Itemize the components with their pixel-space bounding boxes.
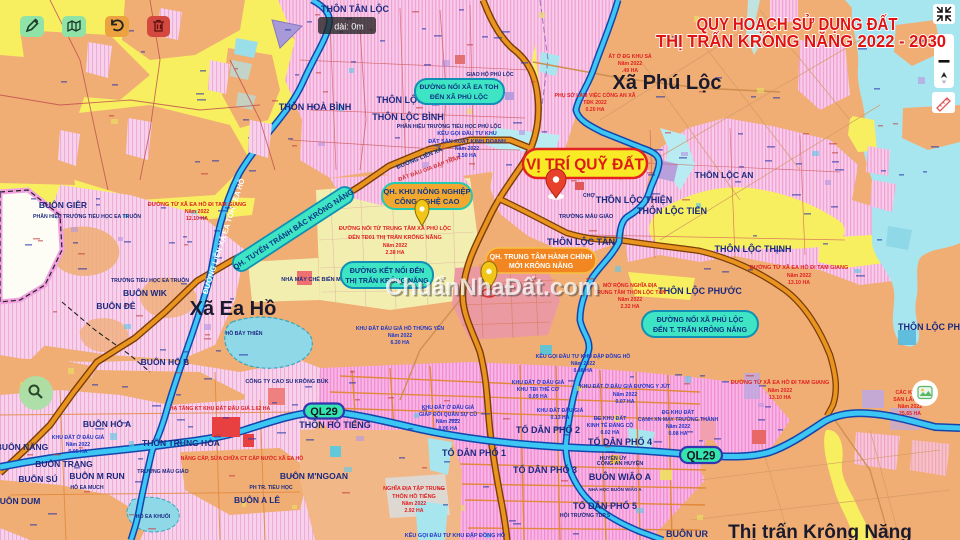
svg-text:BUÔN ĐÊ: BUÔN ĐÊ xyxy=(96,300,136,311)
svg-text:QH. TRUNG TÂM HÀNH CHÍNH: QH. TRUNG TÂM HÀNH CHÍNH xyxy=(490,252,593,261)
svg-text:Năm 2022: Năm 2022 xyxy=(618,297,642,303)
svg-text:TỔ DÂN PHỐ 1: TỔ DÂN PHỐ 1 xyxy=(442,447,506,458)
svg-text:Năm 2022: Năm 2022 xyxy=(571,361,595,367)
svg-text:PHÂN HIỆU TRƯỜNG TIỂU HỌC EA T: PHÂN HIỆU TRƯỜNG TIỂU HỌC EA TRUÔN xyxy=(33,212,141,220)
svg-text:HẠ TẦNG KT KHU ĐẤT ĐẤU GIÁ 1.6: HẠ TẦNG KT KHU ĐẤT ĐẤU GIÁ 1.62 HA xyxy=(170,405,271,412)
svg-text:MỞ RỘNG NGHĨA ĐỊA: MỞ RỘNG NGHĨA ĐỊA xyxy=(603,281,657,289)
svg-text:HỒ EA KHUỐI: HỒ EA KHUỐI xyxy=(136,513,171,520)
svg-text:Năm 2022: Năm 2022 xyxy=(455,146,479,152)
svg-text:ĐƯỜNG TỪ XÃ EA HỒ ĐI TAM GIANG: ĐƯỜNG TỪ XÃ EA HỒ ĐI TAM GIANG xyxy=(750,263,848,271)
svg-text:THÔN TÂN LỘC: THÔN TÂN LỘC xyxy=(321,3,389,14)
svg-text:THÔN HỒ TIẾNG: THÔN HỒ TIẾNG xyxy=(392,492,436,500)
svg-text:Xã Ea Hồ: Xã Ea Hồ xyxy=(190,298,277,320)
svg-text:CHỢ: CHỢ xyxy=(583,193,595,199)
svg-text:QH. KHU NÔNG NGHIỆP: QH. KHU NÔNG NGHIỆP xyxy=(383,187,470,196)
svg-text:dài: 0m: dài: 0m xyxy=(334,22,364,32)
svg-text:THÔN LỘC TÂN: THÔN LỘC TÂN xyxy=(547,236,615,247)
svg-text:PHÂN HIỆU TRƯỜNG TIỂU HỌC PHÚ: PHÂN HIỆU TRƯỜNG TIỂU HỌC PHÚ LỘC xyxy=(397,122,502,130)
svg-text:Năm 2022: Năm 2022 xyxy=(618,61,642,67)
svg-text:BUÔN DUM: BUÔN DUM xyxy=(0,495,40,506)
svg-text:THÔN LỘC BÌNH: THÔN LỘC BÌNH xyxy=(372,111,444,122)
svg-text:2.32 HA: 2.32 HA xyxy=(620,304,639,310)
svg-text:BUÔN HỐ B: BUÔN HỐ B xyxy=(141,356,190,367)
svg-text:TRUNG TÂM THÔN LỘC TÂN: TRUNG TÂM THÔN LỘC TÂN xyxy=(594,288,666,296)
svg-text:Năm 2022: Năm 2022 xyxy=(66,442,90,448)
svg-text:TỔ DÂN PHỐ 2: TỔ DÂN PHỐ 2 xyxy=(516,424,580,435)
svg-text:THÔN HỒ TIẾNG: THÔN HỒ TIẾNG xyxy=(299,419,371,430)
svg-text:QL29: QL29 xyxy=(687,451,716,463)
svg-text:QL29: QL29 xyxy=(310,406,338,418)
svg-text:NGHĨA ĐỊA TẬP TRUNG: NGHĨA ĐỊA TẬP TRUNG xyxy=(383,485,445,492)
svg-text:KHU ĐẤT ĐẤU GIÁ HỒ THỪNG YÊN: KHU ĐẤT ĐẤU GIÁ HỒ THỪNG YÊN xyxy=(356,324,445,332)
svg-text:6.30 HA: 6.30 HA xyxy=(390,340,409,346)
svg-text:Năm 2022: Năm 2022 xyxy=(185,209,209,215)
svg-text:THÔN HOÀ BÌNH: THÔN HOÀ BÌNH xyxy=(279,101,352,112)
svg-text:HỒ BẢY THIÊN: HỒ BẢY THIÊN xyxy=(225,329,262,337)
svg-text:ĐẾN TĐ01 THỊ TRẤN KRÔNG NĂNG: ĐẾN TĐ01 THỊ TRẤN KRÔNG NĂNG xyxy=(348,233,442,241)
svg-text:.49 HA: .49 HA xyxy=(622,68,638,74)
svg-text:KÊU GỌI ĐẦU TƯ KHU ĐẬP ĐỒNG HỒ: KÊU GỌI ĐẦU TƯ KHU ĐẬP ĐỒNG HỒ xyxy=(405,531,506,539)
svg-text:KHU ĐẤT ĐẤU GIÁ: KHU ĐẤT ĐẤU GIÁ xyxy=(537,407,584,414)
svg-text:TRƯỜNG MẪU GIÁO: TRƯỜNG MẪU GIÁO xyxy=(559,212,614,220)
svg-text:KHU ĐẤT Ở ĐẤU GIÁ: KHU ĐẤT Ở ĐẤU GIÁ xyxy=(422,404,475,411)
svg-text:MỚI KRÔNG NĂNG: MỚI KRÔNG NĂNG xyxy=(509,261,574,270)
svg-text:TỔ DÂN PHỐ 4: TỔ DÂN PHỐ 4 xyxy=(588,436,652,447)
svg-text:Năm 2022: Năm 2022 xyxy=(402,501,426,507)
svg-text:0.02 HA: 0.02 HA xyxy=(600,430,619,436)
svg-text:Năm 2022: Năm 2022 xyxy=(666,424,690,430)
svg-text:Xã Phú Lộc: Xã Phú Lộc xyxy=(613,72,722,94)
svg-text:THÔN LỘC THỊNH: THÔN LỘC THỊNH xyxy=(715,243,792,254)
svg-text:Năm 2022: Năm 2022 xyxy=(898,404,922,410)
svg-text:0.48 HA: 0.48 HA xyxy=(573,368,592,374)
svg-text:Năm 2022: Năm 2022 xyxy=(768,388,792,394)
svg-text:ĐG KHU ĐẤT: ĐG KHU ĐẤT xyxy=(662,409,695,416)
svg-text:THÔN LỘC PH: THÔN LỘC PH xyxy=(898,321,960,332)
svg-text:KINH TẾ ĐẢNG CỘ: KINH TẾ ĐẢNG CỘ xyxy=(587,421,634,429)
svg-text:25.65 HA: 25.65 HA xyxy=(899,411,921,417)
svg-text:ĐẤT SẢN XUẤT KINH DOANH: ĐẤT SẢN XUẤT KINH DOANH xyxy=(428,138,506,145)
svg-text:0.09 HA: 0.09 HA xyxy=(528,394,547,400)
svg-text:BUÔN SÚ: BUÔN SÚ xyxy=(18,473,57,484)
svg-text:CẠNH XN MAY TRƯỜNG THÀNH: CẠNH XN MAY TRƯỜNG THÀNH xyxy=(638,415,719,423)
svg-text:VỊ TRÍ QUỸ ĐẤT: VỊ TRÍ QUỸ ĐẤT xyxy=(526,156,645,174)
svg-text:0.06 HA: 0.06 HA xyxy=(438,426,457,432)
svg-text:HỒ EA MUCH: HỒ EA MUCH xyxy=(70,484,103,491)
svg-text:TĐK 2022: TĐK 2022 xyxy=(583,100,607,106)
svg-text:2.92 HA: 2.92 HA xyxy=(404,508,423,514)
svg-text:HUYỆN ỦY: HUYỆN ỦY xyxy=(600,454,627,462)
svg-text:BUÔN WIK: BUÔN WIK xyxy=(123,287,168,298)
svg-text:GIÁP ĐỒI QUÂN SỰ CŨ: GIÁP ĐỒI QUÂN SỰ CŨ xyxy=(419,411,477,418)
svg-text:THỊ TRẤN KRÔNG NĂNG 2022 - 203: THỊ TRẤN KRÔNG NĂNG 2022 - 2030 xyxy=(656,30,946,51)
svg-text:THÔN TRUNG HÒA: THÔN TRUNG HÒA xyxy=(142,437,220,448)
svg-text:KHU ĐẤT Ở ĐẤU GIÁ: KHU ĐẤT Ở ĐẤU GIÁ xyxy=(52,434,105,441)
svg-text:Năm 2022: Năm 2022 xyxy=(436,419,460,425)
svg-text:NHÀ MÁY CHẾ BIẾN M: NHÀ MÁY CHẾ BIẾN M xyxy=(281,276,341,283)
svg-text:BUÔN A LÊ: BUÔN A LÊ xyxy=(234,494,280,505)
svg-text:KHU ĐẤT Ở ĐẤU GIÁ: KHU ĐẤT Ở ĐẤU GIÁ xyxy=(512,379,565,386)
svg-text:TỔ DÂN PHỐ 5: TỔ DÂN PHỐ 5 xyxy=(573,500,637,511)
svg-text:Thị trấn Krông Năng: Thị trấn Krông Năng xyxy=(728,522,912,540)
svg-text:2.38 HA: 2.38 HA xyxy=(385,250,404,256)
svg-text:CÔNG TY CAO SU KRÔNG BÚK: CÔNG TY CAO SU KRÔNG BÚK xyxy=(245,377,328,385)
svg-text:ĐƯỜNG NỐI TỪ TRUNG TÂM XÃ PHÚ: ĐƯỜNG NỐI TỪ TRUNG TÂM XÃ PHÚ LỘC xyxy=(339,224,451,232)
svg-text:PHỤ SỞ LÀM VIỆC CÔNG AN XÃ: PHỤ SỞ LÀM VIỆC CÔNG AN XÃ xyxy=(555,91,636,99)
svg-text:ẤT Ở ĐG KHU SẢ: ẤT Ở ĐG KHU SẢ xyxy=(608,53,652,60)
svg-text:TRƯỜNG TIỂU HỌC EA TRUÔN: TRƯỜNG TIỂU HỌC EA TRUÔN xyxy=(111,276,189,284)
svg-text:BUÔN NĂNG: BUÔN NĂNG xyxy=(0,441,49,452)
svg-text:12.10 HA: 12.10 HA xyxy=(186,216,208,222)
svg-text:THÔN LỘC THIỆN: THÔN LỘC THIỆN xyxy=(596,194,673,205)
svg-text:BUÔN WIÂO A: BUÔN WIÂO A xyxy=(589,471,652,482)
svg-text:ChuẩnNhaĐất.com: ChuẩnNhaĐất.com xyxy=(385,274,599,301)
svg-text:BUÔN GIÊR: BUÔN GIÊR xyxy=(39,199,87,210)
svg-text:0.05 HA: 0.05 HA xyxy=(68,449,87,455)
svg-text:ĐƯỜNG TỪ XÃ EA HỒ ĐI TAM GIANG: ĐƯỜNG TỪ XÃ EA HỒ ĐI TAM GIANG xyxy=(731,378,829,386)
svg-text:BUÔN UR: BUÔN UR xyxy=(666,528,708,539)
svg-text:BUÔN HỐ A: BUÔN HỐ A xyxy=(83,418,131,429)
svg-text:Năm 2022: Năm 2022 xyxy=(613,392,637,398)
svg-text:KHU TĐI THẾ CƠ: KHU TĐI THẾ CƠ xyxy=(517,386,560,393)
svg-text:0.13 HA: 0.13 HA xyxy=(550,415,569,421)
svg-text:Năm 2022: Năm 2022 xyxy=(787,273,811,279)
svg-text:BUÔN TRANG: BUÔN TRANG xyxy=(35,458,93,469)
svg-text:NHÀ HỌC BUÔN WIÂO A: NHÀ HỌC BUÔN WIÂO A xyxy=(588,485,642,492)
svg-text:PH TR. TIỂU HỌC: PH TR. TIỂU HỌC xyxy=(249,484,292,491)
svg-text:ĐG KHU ĐẤT: ĐG KHU ĐẤT xyxy=(594,415,627,422)
svg-text:THÔN LỘC PHƯỚC: THÔN LỘC PHƯỚC xyxy=(658,285,742,296)
svg-text:TRƯỜNG MẪU GIÁO: TRƯỜNG MẪU GIÁO xyxy=(137,467,188,475)
svg-text:THÔN LỘC AN: THÔN LỘC AN xyxy=(695,169,754,180)
svg-text:THÔN LỘC TIẾN: THÔN LỘC TIẾN xyxy=(637,205,707,216)
svg-text:BUÔN M'NGOAN: BUÔN M'NGOAN xyxy=(280,470,348,481)
svg-text:BUÔN M RUN: BUÔN M RUN xyxy=(69,470,124,481)
svg-text:Năm 2022: Năm 2022 xyxy=(383,243,407,249)
svg-text:0.08 HA: 0.08 HA xyxy=(668,431,687,437)
svg-text:HỘI TRƯỜNG TDP 5: HỘI TRƯỜNG TDP 5 xyxy=(560,511,610,519)
svg-text:0.20 HA: 0.20 HA xyxy=(585,107,604,113)
svg-text:KÊU GỌI ĐẦU TƯ KHU ĐẬP ĐÔNG HỒ: KÊU GỌI ĐẦU TƯ KHU ĐẬP ĐÔNG HỒ xyxy=(536,352,631,360)
svg-text:Năm 2022: Năm 2022 xyxy=(388,333,412,339)
svg-text:KHU ĐẤT Ở ĐẤU GIÁ ĐƯỜNG Y JÚT: KHU ĐẤT Ở ĐẤU GIÁ ĐƯỜNG Y JÚT xyxy=(580,382,671,390)
svg-text:0.07 HA: 0.07 HA xyxy=(615,399,634,405)
svg-text:TỔ DÂN PHỐ 3: TỔ DÂN PHỐ 3 xyxy=(513,464,577,475)
svg-text:NÂNG CẤP, SỬA CHỮA CT CẤP NƯỚC: NÂNG CẤP, SỬA CHỮA CT CẤP NƯỚC XÃ EA HỒ xyxy=(181,454,304,462)
svg-text:13.10 HA: 13.10 HA xyxy=(769,395,791,401)
svg-text:13.10 HA: 13.10 HA xyxy=(788,280,810,286)
svg-text:GIAO HỘ PHÚ LỘC: GIAO HỘ PHÚ LỘC xyxy=(466,70,514,78)
svg-text:KÊU GỌI ĐẦU TƯ KHU: KÊU GỌI ĐẦU TƯ KHU xyxy=(437,129,497,137)
